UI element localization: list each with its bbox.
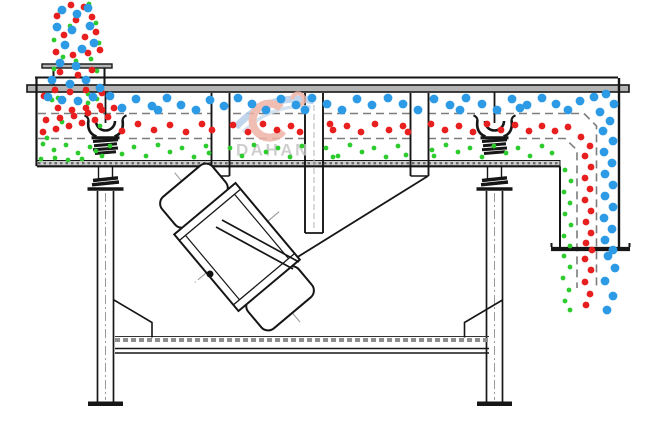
particle-dot — [252, 143, 257, 148]
gusset-right — [465, 300, 503, 338]
particle-dot — [183, 129, 190, 136]
particle-dot — [55, 105, 62, 112]
particle-dot — [292, 101, 301, 110]
particle-dot — [338, 106, 347, 115]
motor-bracket-right — [296, 176, 428, 258]
particle-dot — [564, 106, 573, 115]
particle-dot — [353, 95, 362, 104]
particle-dot — [288, 155, 293, 160]
particle-dot — [93, 29, 100, 36]
particle-dot — [601, 170, 610, 179]
particle-dot — [248, 100, 257, 109]
particle-dot — [83, 87, 90, 94]
particle-dot — [430, 148, 435, 153]
watermark-brand-text: DAHAN — [236, 141, 310, 160]
particle-dot — [61, 32, 68, 39]
particle-dot — [562, 234, 567, 239]
particle-dot — [73, 10, 82, 19]
particle-dot — [456, 106, 465, 115]
particle-dot — [108, 144, 113, 149]
particle-dot — [297, 129, 304, 136]
motor-assembly — [133, 137, 428, 357]
particle-dot — [512, 122, 519, 129]
particle-dot — [540, 144, 545, 149]
particle-dot — [52, 87, 59, 94]
particle-dot — [582, 153, 589, 160]
particle-dot — [80, 157, 85, 162]
particle-dot — [52, 38, 57, 43]
particle-dot — [563, 212, 568, 217]
particle-dot — [569, 179, 574, 184]
particle-dot — [523, 101, 532, 110]
particle-dot — [611, 264, 620, 273]
particle-dot — [56, 59, 65, 68]
particle-dot — [428, 121, 435, 128]
particle-dot — [405, 129, 412, 136]
particle-dot — [609, 203, 618, 212]
particle-dot — [53, 156, 58, 161]
particle-dot — [562, 190, 567, 195]
particle-dot — [578, 134, 585, 141]
particles-blue — [44, 4, 620, 315]
particle-dot — [66, 123, 73, 130]
particle-dot — [484, 121, 491, 128]
particle-dot — [604, 252, 613, 261]
particle-dot — [609, 292, 618, 301]
particle-dot — [41, 142, 46, 147]
particle-dot — [478, 100, 487, 109]
particle-dot — [582, 175, 589, 182]
particle-dot — [470, 129, 477, 136]
particle-dot — [601, 192, 610, 201]
particle-dot — [526, 128, 533, 135]
particle-dot — [120, 152, 125, 157]
particle-dot — [61, 41, 70, 50]
particle-dot — [538, 94, 547, 103]
particle-dot — [609, 137, 618, 146]
particle-dot — [576, 97, 585, 106]
gusset-left — [114, 300, 152, 338]
particle-dot — [432, 154, 437, 159]
particle-dot — [552, 128, 559, 135]
particle-dot — [587, 186, 594, 193]
particle-dot — [589, 247, 596, 254]
particle-dot — [84, 4, 93, 13]
particle-dot — [76, 151, 81, 156]
particle-dot — [118, 104, 127, 113]
particle-dot — [132, 145, 137, 150]
particle-dot — [468, 146, 473, 151]
particle-dot — [260, 121, 267, 128]
particle-dot — [100, 154, 105, 159]
particle-dot — [368, 101, 377, 110]
particle-dot — [442, 127, 449, 134]
particle-dot — [516, 146, 521, 151]
particle-dot — [583, 302, 590, 309]
particle-dot — [568, 244, 573, 249]
particle-dot — [493, 106, 502, 115]
particle-dot — [565, 124, 572, 131]
particle-dot — [583, 240, 590, 247]
particle-dot — [288, 123, 295, 130]
particle-dot — [88, 145, 93, 150]
particle-dot — [40, 129, 47, 136]
particle-dot — [348, 143, 353, 148]
particle-dot — [97, 47, 104, 54]
particle-dot — [228, 146, 233, 151]
particle-dot — [67, 89, 74, 96]
particle-dot — [89, 67, 96, 74]
suspension-right — [474, 92, 516, 404]
particle-dot — [587, 291, 594, 298]
particle-dot — [156, 143, 161, 148]
particle-dot — [563, 168, 568, 173]
particle-dot — [563, 299, 568, 304]
particle-dot — [528, 154, 533, 159]
particle-dot — [608, 159, 617, 168]
particle-dot — [498, 127, 505, 134]
particle-dot — [561, 276, 566, 281]
particle-dot — [64, 143, 69, 148]
particle-dot — [264, 150, 269, 155]
particle-dot — [68, 26, 77, 35]
particle-dot — [504, 151, 509, 156]
particle-dot — [372, 121, 379, 128]
particle-dot — [358, 129, 365, 136]
particle-dot — [144, 154, 149, 159]
particle-dot — [192, 155, 197, 160]
particle-dot — [99, 107, 106, 114]
particle-dot — [330, 127, 337, 134]
spring-coil-lower — [92, 178, 119, 185]
particle-dot — [508, 95, 517, 104]
particle-dot — [456, 123, 463, 130]
particle-dot — [300, 144, 305, 149]
particle-dot — [414, 106, 423, 115]
particle-dot — [204, 144, 209, 149]
particle-dot — [192, 106, 201, 115]
particle-dot — [562, 254, 567, 259]
support-frame — [114, 300, 503, 353]
particle-dot — [336, 154, 341, 159]
particle-dot — [96, 84, 105, 93]
particle-dot — [44, 93, 53, 102]
particle-dot — [206, 96, 215, 105]
particle-dot — [608, 225, 617, 234]
particle-dot — [262, 106, 271, 115]
particle-dot — [587, 143, 594, 150]
particle-dot — [601, 277, 610, 286]
vibration-motor — [133, 137, 343, 357]
particle-dot — [66, 158, 71, 163]
particle-dot — [480, 155, 485, 160]
particle-dot — [132, 95, 141, 104]
particle-dot — [86, 22, 95, 31]
particle-dot — [168, 150, 173, 155]
particle-dot — [79, 120, 86, 127]
diagram-canvas: DAHAN — [0, 0, 650, 436]
particle-dot — [234, 94, 243, 103]
particle-dot — [92, 117, 99, 124]
particle-dot — [610, 100, 619, 109]
particle-dot — [230, 122, 237, 129]
particle-dot — [539, 123, 546, 130]
motor-bolt — [207, 271, 214, 278]
particle-dot — [70, 52, 77, 59]
particle-dot — [301, 106, 310, 115]
particle-dot — [57, 69, 64, 76]
particle-dot — [456, 150, 461, 155]
particle-dot — [90, 39, 99, 48]
particle-dot — [582, 256, 589, 263]
particle-dot — [601, 236, 610, 245]
particle-dot — [58, 96, 67, 105]
particle-dot — [94, 149, 99, 154]
particle-dot — [327, 121, 334, 128]
particle-dot — [89, 93, 98, 102]
particle-dot — [582, 197, 589, 204]
particle-dot — [404, 153, 409, 158]
particle-dot — [588, 208, 595, 215]
particle-dot — [105, 114, 112, 121]
particle-dot — [567, 288, 572, 293]
particle-dot — [135, 121, 142, 128]
particle-dot — [52, 67, 57, 72]
particle-dot — [550, 151, 555, 156]
particle-dot — [583, 219, 590, 226]
particle-dot — [430, 95, 439, 104]
particle-dot — [552, 100, 561, 109]
particle-dot — [274, 127, 281, 134]
particle-dot — [53, 126, 60, 133]
particle-dot — [52, 148, 57, 153]
particle-dot — [569, 223, 574, 228]
particle-dot — [276, 146, 281, 151]
particle-dot — [163, 94, 172, 103]
particle-dot — [384, 94, 393, 103]
particle-dot — [48, 76, 57, 85]
particle-dot — [372, 146, 377, 151]
particle-dot — [568, 201, 573, 206]
particle-dot — [277, 95, 286, 104]
particle-dot — [588, 230, 595, 237]
particle-dot — [75, 72, 82, 79]
particle-dot — [396, 144, 401, 149]
particle-dot — [43, 117, 50, 124]
suspension-left — [85, 92, 127, 404]
particle-dot — [308, 94, 317, 103]
particle-dot — [600, 214, 609, 223]
particle-dot — [492, 144, 497, 149]
particle-dot — [111, 105, 118, 112]
particle-dot — [72, 62, 81, 71]
particle-dot — [61, 55, 66, 60]
particle-dot — [154, 106, 163, 115]
particle-dot — [68, 2, 75, 9]
particle-dot — [603, 306, 612, 315]
particle-dot — [596, 108, 605, 117]
particle-dot — [400, 123, 407, 130]
particle-dot — [588, 267, 595, 274]
particle-dot — [45, 136, 50, 141]
particle-dot — [331, 155, 336, 160]
box-top-bar — [27, 85, 629, 92]
particle-dot — [177, 101, 186, 110]
particle-dot — [207, 151, 212, 156]
particle-dot — [602, 90, 611, 99]
particle-dot — [69, 107, 76, 114]
particle-dot — [66, 80, 75, 89]
particle-dot — [245, 129, 252, 136]
particle-dot — [98, 124, 103, 129]
particle-dot — [57, 115, 64, 122]
particle-dot — [82, 34, 89, 41]
particle-dot — [89, 14, 96, 21]
particle-dot — [209, 127, 216, 134]
vibrating-screen-diagram: DAHAN — [0, 0, 650, 436]
particle-dot — [444, 143, 449, 148]
particle-dot — [220, 102, 229, 111]
particle-dot — [384, 155, 389, 160]
particle-dot — [199, 121, 206, 128]
particle-dot — [324, 146, 329, 151]
particle-dot — [399, 100, 408, 109]
particle-dot — [462, 94, 471, 103]
particle-dot — [344, 123, 351, 130]
particle-dot — [89, 57, 94, 62]
particle-dot — [167, 122, 174, 129]
particle-dot — [588, 164, 595, 171]
particle-dot — [323, 100, 332, 109]
particle-dot — [606, 117, 615, 126]
particle-dot — [71, 113, 78, 120]
particle-dot — [119, 128, 126, 135]
particle-dot — [180, 146, 185, 151]
particle-dot — [39, 157, 44, 162]
particle-dot — [94, 21, 99, 26]
particle-dot — [82, 76, 91, 85]
particle-dot — [53, 23, 62, 32]
particle-dot — [609, 181, 618, 190]
particle-dot — [568, 265, 573, 270]
particle-dot — [85, 110, 92, 117]
particle-dot — [151, 127, 158, 134]
particle-dot — [78, 45, 87, 54]
particle-dot — [54, 13, 61, 20]
particle-dot — [240, 154, 245, 159]
particle-dot — [360, 150, 365, 155]
particle-dot — [599, 127, 608, 136]
particle-dot — [74, 97, 83, 106]
particle-dot — [446, 101, 455, 110]
particle-dot — [582, 279, 589, 286]
particle-dot — [600, 148, 609, 157]
particle-dot — [568, 308, 573, 313]
particle-dot — [58, 6, 67, 15]
particle-dot — [386, 127, 393, 134]
particle-dot — [106, 92, 115, 101]
particle-dot — [53, 49, 60, 56]
particle-dot — [590, 93, 599, 102]
